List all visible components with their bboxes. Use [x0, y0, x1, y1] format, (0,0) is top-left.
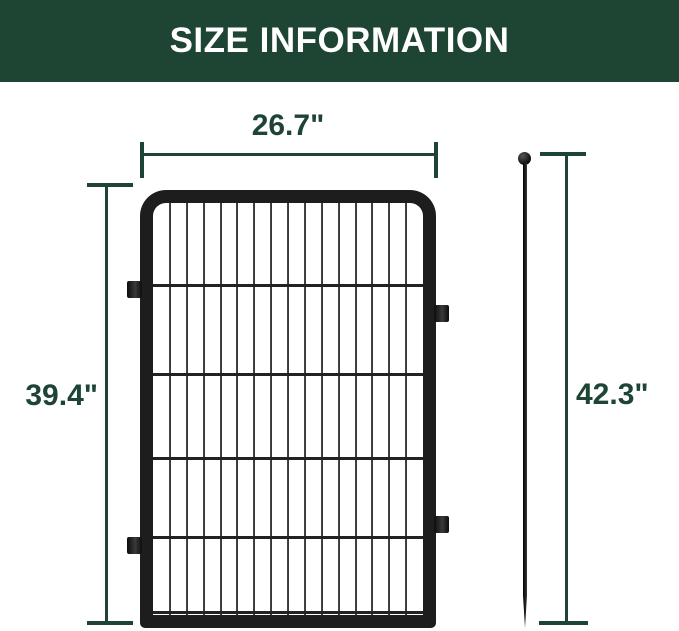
height-dimension-tick-top [87, 183, 133, 187]
panel-height-label: 39.4" [16, 379, 98, 413]
connector-tab-left-top [127, 281, 142, 298]
stake-shaft [523, 163, 527, 628]
width-dimension-tick-left [140, 142, 144, 178]
vertical-wire [253, 203, 255, 615]
connector-tab-left-bottom [127, 537, 142, 554]
vertical-wire [388, 203, 390, 615]
stake-dimension-tick-top [540, 152, 586, 156]
vertical-wire [304, 203, 306, 615]
panel-width-label: 26.7" [139, 109, 437, 143]
vertical-wire [236, 203, 238, 615]
horizontal-wire [153, 284, 423, 287]
vertical-wire [371, 203, 373, 615]
horizontal-wire [153, 373, 423, 376]
vertical-wire [270, 203, 272, 615]
height-dimension-line [105, 185, 108, 625]
width-dimension-tick-right [434, 142, 438, 178]
header-bar: SIZE INFORMATION [0, 0, 679, 82]
vertical-wire [186, 203, 188, 615]
vertical-wire [321, 203, 323, 615]
stake-dimension-tick-bottom [539, 621, 588, 625]
width-dimension-line [142, 153, 436, 156]
vertical-wire [203, 203, 205, 615]
stake-height-label: 42.3" [576, 378, 649, 412]
size-infographic: SIZE INFORMATION 26.7" 39.4" [0, 0, 679, 631]
connector-tab-right-top [434, 305, 449, 322]
vertical-wire [355, 203, 357, 615]
vertical-wire [169, 203, 171, 615]
vertical-wire [287, 203, 289, 615]
vertical-wire [338, 203, 340, 615]
vertical-wire [220, 203, 222, 615]
horizontal-wire [153, 611, 423, 614]
fence-panel [140, 190, 436, 628]
vertical-wire [405, 203, 407, 615]
height-dimension-tick-bottom [87, 621, 133, 625]
horizontal-wire [153, 536, 423, 539]
page-title: SIZE INFORMATION [170, 21, 510, 61]
stake-dimension-line [565, 154, 568, 623]
connector-tab-right-bottom [434, 516, 449, 533]
panel-mesh [153, 203, 423, 615]
horizontal-wire [153, 457, 423, 460]
